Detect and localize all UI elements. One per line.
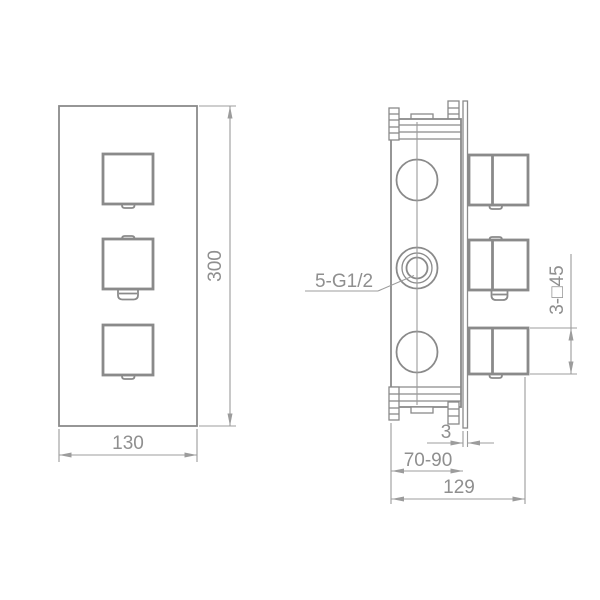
bottom-right-screw <box>448 402 459 424</box>
total-depth-label: 129 <box>443 477 475 498</box>
knob-3-square <box>103 325 153 375</box>
bottom-tab <box>411 407 433 413</box>
dimension-plate-3: 3 <box>427 422 494 447</box>
handle-2-body <box>469 240 528 290</box>
side-view <box>389 101 528 428</box>
bottom-left-bracket <box>389 387 399 420</box>
arrow-left-icon <box>392 469 405 474</box>
dimension-width-130: 130 <box>59 429 197 462</box>
install-depth-label: 70-90 <box>404 450 453 471</box>
knob-1-square <box>103 154 153 204</box>
dimension-height-300: 300 <box>199 106 236 426</box>
front-knob-2 <box>103 236 153 300</box>
arrow-right-icon <box>451 441 464 446</box>
arrow-left-icon <box>59 453 72 458</box>
knob-2-square <box>103 239 153 289</box>
wall-plate <box>463 101 468 428</box>
port-label: 5-G1/2 <box>315 271 373 292</box>
front-knob-1 <box>103 154 153 208</box>
arrow-down-icon <box>569 362 574 375</box>
knob-2-lever <box>118 290 138 300</box>
handle-square-label: 3-□45 <box>547 265 568 315</box>
arrow-right-icon <box>185 453 198 458</box>
front-knob-3 <box>103 325 153 379</box>
top-left-bracket <box>389 108 399 140</box>
front-view <box>59 106 197 426</box>
arrow-up-icon <box>228 106 233 119</box>
side-handle-1 <box>469 155 528 209</box>
side-handle-2 <box>469 237 528 300</box>
arrow-right-icon <box>451 469 464 474</box>
arrow-left-icon <box>392 497 405 502</box>
height-label: 300 <box>205 250 226 282</box>
plate-thickness-label: 3 <box>441 422 452 443</box>
technical-drawing: 300 130 <box>0 0 600 600</box>
width-label: 130 <box>112 433 144 454</box>
dimension-handle-45: 3-□45 <box>530 254 577 374</box>
handle-3-body <box>469 328 528 374</box>
handle-1-body <box>469 155 528 205</box>
arrow-down-icon <box>228 414 233 427</box>
arrow-up-icon <box>569 328 574 341</box>
arrow-left-icon <box>468 441 481 446</box>
arrow-right-icon <box>513 497 526 502</box>
side-handle-3 <box>469 328 528 378</box>
